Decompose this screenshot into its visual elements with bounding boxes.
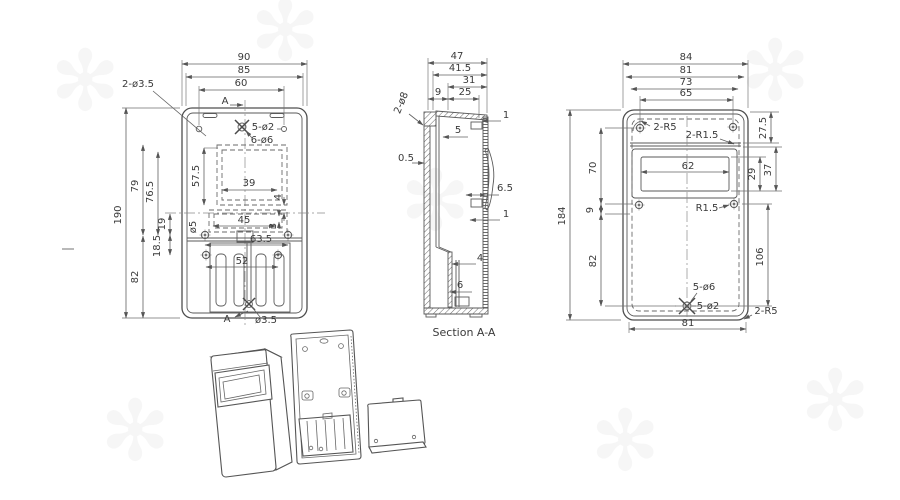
front-view-outline <box>165 100 325 328</box>
side-dim-0_5: 0.5 <box>398 153 414 164</box>
front-view: 90 85 60 2-ø3.5 A 5-ø2 6-ø6 190 79 76.5 … <box>113 52 325 328</box>
iso-battery-cover <box>368 398 426 453</box>
side-dim-41_5: 41.5 <box>449 63 471 74</box>
side-dim-1-upper: 1 <box>503 110 509 121</box>
svg-text:✻: ✻ <box>800 352 870 450</box>
back-view-outline <box>623 110 748 320</box>
svg-text:✻: ✻ <box>50 32 120 130</box>
back-dim-65: 65 <box>680 88 693 99</box>
front-dim-57_5: 57.5 <box>191 165 202 187</box>
front-dim-19: 19 <box>157 218 168 231</box>
front-dim-60: 60 <box>235 78 248 89</box>
side-dim-47: 47 <box>451 51 464 62</box>
drawing-canvas: ✻✻ ✻✻ ✻✻ ✻ <box>0 0 900 500</box>
svg-text:✻: ✻ <box>740 22 810 120</box>
back-dim-9: 9 <box>585 207 596 213</box>
side-note-2xd8: 2-ø8 <box>392 91 411 116</box>
front-dim-190: 190 <box>113 205 124 224</box>
front-dim-52: 52 <box>236 256 249 267</box>
back-view: 84 81 73 65 2-R5 2-R1.5 27.5 62 29 37 <box>557 52 782 333</box>
back-dim-73: 73 <box>680 77 693 88</box>
back-dim-81-top: 81 <box>680 65 693 76</box>
front-dim-63_5: 63.5 <box>250 234 272 245</box>
section-caption: Section A-A <box>433 326 496 339</box>
front-dim-76_5: 76.5 <box>145 181 156 203</box>
front-dim-dia5: ø5 <box>188 221 199 233</box>
isometric-views <box>211 330 426 477</box>
svg-text:✻: ✻ <box>400 152 470 250</box>
back-dim-27_5: 27.5 <box>758 117 769 139</box>
iso-front-enclosure <box>211 349 292 477</box>
side-dim-1-mid: 1 <box>503 209 509 220</box>
front-dim-85: 85 <box>238 65 251 76</box>
back-dim-82: 82 <box>588 255 599 268</box>
side-dim-9: 9 <box>435 87 441 98</box>
back-dim-184: 184 <box>557 206 568 225</box>
back-note-5xd2: 5-ø2 <box>697 301 719 312</box>
svg-text:✻: ✻ <box>250 0 320 80</box>
iso-back-panel <box>291 330 361 464</box>
back-note-2r5-bottom: 2-R5 <box>754 306 777 317</box>
back-note-r1_5: R1.5 <box>696 203 719 214</box>
back-dim-62: 62 <box>682 161 695 172</box>
side-dim-5: 5 <box>455 125 461 136</box>
front-note-5xd2: 5-ø2 <box>252 122 274 133</box>
side-dim-6_5: 6.5 <box>497 183 513 194</box>
back-dim-29: 29 <box>747 168 758 181</box>
front-note-2xd3_5: 2-ø3.5 <box>122 79 154 90</box>
back-dim-81-bottom: 81 <box>682 318 695 329</box>
front-note-6xd6: 6-ø6 <box>251 135 273 146</box>
front-section-label-top: A <box>222 96 229 107</box>
front-dim-18_5: 18.5 <box>152 235 163 257</box>
back-dim-70: 70 <box>588 162 599 175</box>
back-note-2r1_5: 2-R1.5 <box>686 130 719 141</box>
back-note-5xd6: 5-ø6 <box>693 282 715 293</box>
front-section-label-bottom: A <box>224 314 231 325</box>
side-dim-25: 25 <box>459 87 472 98</box>
back-dim-84: 84 <box>680 52 693 63</box>
back-dim-106: 106 <box>755 247 766 266</box>
svg-text:✻: ✻ <box>100 382 170 480</box>
front-dim-82: 82 <box>130 271 141 284</box>
side-dim-4: 4 <box>477 253 483 264</box>
front-dim-39: 39 <box>243 178 256 189</box>
back-dim-37: 37 <box>763 164 774 177</box>
front-dim-45: 45 <box>238 215 251 226</box>
front-dim-79: 79 <box>130 180 141 193</box>
front-dim-4: 4 <box>273 194 284 200</box>
front-dim-3: 3 <box>268 223 279 229</box>
front-dim-90: 90 <box>238 52 251 63</box>
front-note-d3_5: ø3.5 <box>255 315 277 326</box>
side-dim-6: 6 <box>457 280 463 291</box>
technical-drawing-sheet: ✻✻ ✻✻ ✻✻ ✻ <box>0 0 900 500</box>
side-dim-31: 31 <box>463 75 476 86</box>
back-note-2r5-top: 2-R5 <box>653 122 676 133</box>
svg-text:✻: ✻ <box>590 392 660 490</box>
